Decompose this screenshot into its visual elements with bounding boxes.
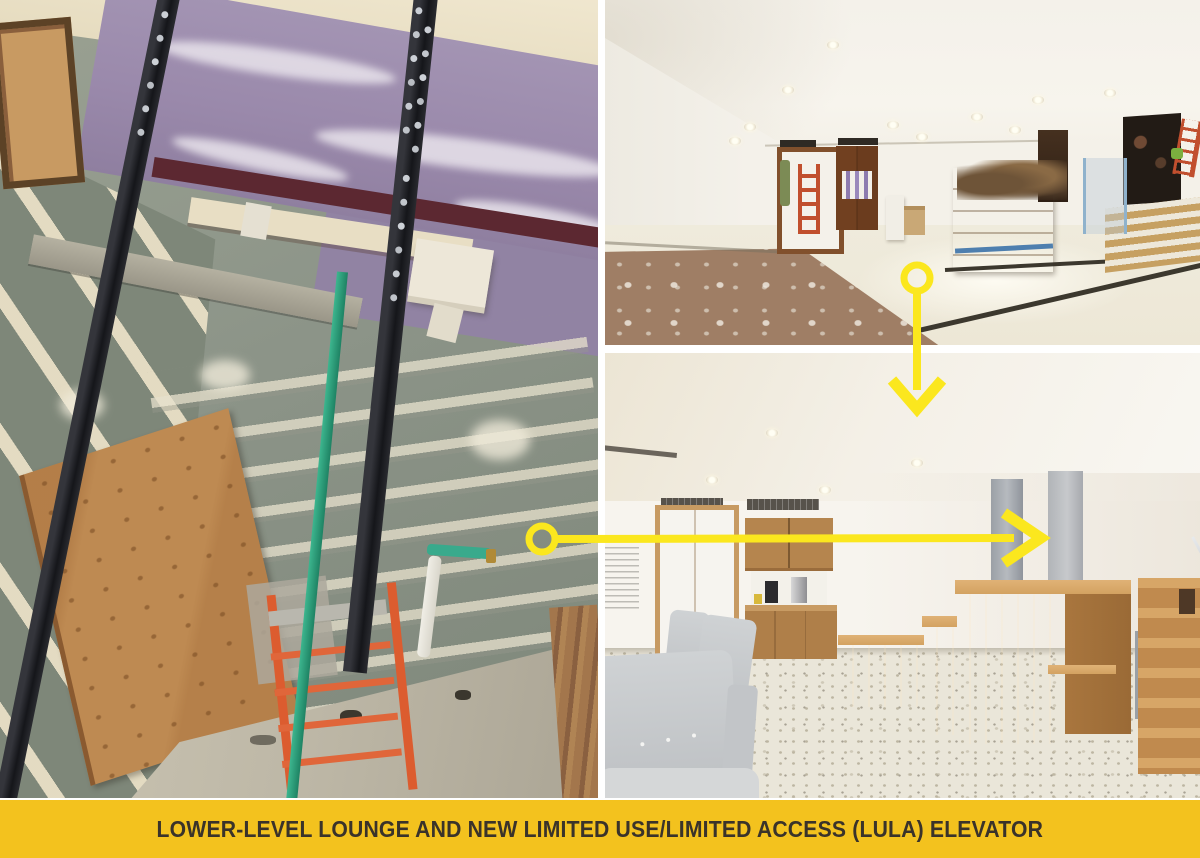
shaft-wood-framed-opening (0, 17, 85, 190)
recessed-light (729, 137, 741, 145)
kitchenette-upper-cabinets (745, 518, 833, 571)
mid-tier-front (922, 627, 957, 735)
wall-signature-text (605, 541, 639, 609)
recessed-light (766, 429, 778, 437)
ladder-rail (387, 582, 418, 790)
compound-splotch (200, 360, 250, 390)
recessed-light (827, 41, 839, 49)
lounge-rendering-photo (605, 353, 1200, 798)
green-object (780, 160, 790, 206)
rail-bolts (402, 175, 410, 183)
cushion-button (640, 742, 644, 746)
debris (455, 690, 471, 700)
kitchenette-lower-cabinets (745, 611, 837, 659)
green-safety-vest (1171, 148, 1183, 159)
doorway-opening (777, 147, 844, 254)
caption-text: LOWER-LEVEL LOUNGE AND NEW LIMITED USE/L… (157, 816, 1044, 843)
yellow-cup (754, 594, 762, 604)
glass-partition (1083, 158, 1127, 234)
plaster-streak (156, 33, 397, 92)
recessed-light (1009, 126, 1021, 134)
compound-splotch (470, 420, 530, 460)
caption-banner: LOWER-LEVEL LOUNGE AND NEW LIMITED USE/L… (0, 800, 1200, 858)
elevator-shaft-pillar (991, 479, 1023, 585)
linear-diffuser-vent (838, 138, 878, 145)
stair-wall-panel (1179, 589, 1195, 614)
recessed-light (911, 459, 923, 467)
rail-bolts (424, 26, 432, 34)
recessed-light (782, 86, 794, 94)
recessed-light (1104, 89, 1116, 97)
dark-wood-door-panels (836, 146, 878, 230)
recessed-light (887, 121, 899, 129)
ladder-rung (271, 641, 391, 661)
rail-bolts (415, 7, 423, 15)
recessed-light (971, 113, 983, 121)
kitchenette-alcove (751, 571, 827, 605)
tiered-seating-side (1065, 594, 1131, 734)
lounge-chair-cushion (605, 649, 738, 784)
construction-debris (957, 160, 1067, 200)
tiered-seating-top (955, 580, 1131, 594)
ladder-rung (274, 677, 394, 697)
cardboard-box (904, 206, 925, 235)
lounge-chair-seat (605, 768, 759, 798)
rail-bolts (161, 11, 169, 19)
cushion-button (692, 733, 696, 737)
coffee-machine (765, 581, 778, 603)
orange-ladder (798, 164, 820, 234)
handrail-post (1135, 631, 1138, 719)
recessed-light (819, 486, 831, 494)
espresso-machine (791, 577, 807, 603)
rail-bracket (408, 238, 494, 307)
recessed-light (706, 476, 718, 484)
tiered-seating-step (1048, 665, 1116, 674)
lounge-construction-photo (605, 0, 1200, 345)
recessed-light (744, 123, 756, 131)
mid-tier-top (922, 616, 957, 627)
white-pedestal (886, 196, 904, 240)
recessed-light (916, 133, 928, 141)
wood-bench-front (838, 645, 924, 707)
dark-window-opening (1123, 113, 1181, 205)
cushion-button (666, 738, 670, 742)
chair-armrest (722, 684, 758, 778)
orange-ladder (255, 580, 436, 798)
wood-bench-top (838, 635, 924, 645)
recessed-light (1032, 96, 1044, 104)
kitchen-vent-grille (747, 499, 819, 510)
sample-board (842, 171, 872, 199)
presentation-slide: LOWER-LEVEL LOUNGE AND NEW LIMITED USE/L… (0, 0, 1200, 858)
elevator-shaft-photo (0, 0, 598, 798)
plaster-streak (313, 120, 598, 186)
brass-fitting (486, 549, 496, 563)
gray-recess (1048, 471, 1083, 583)
linear-diffuser-vent (780, 140, 816, 147)
